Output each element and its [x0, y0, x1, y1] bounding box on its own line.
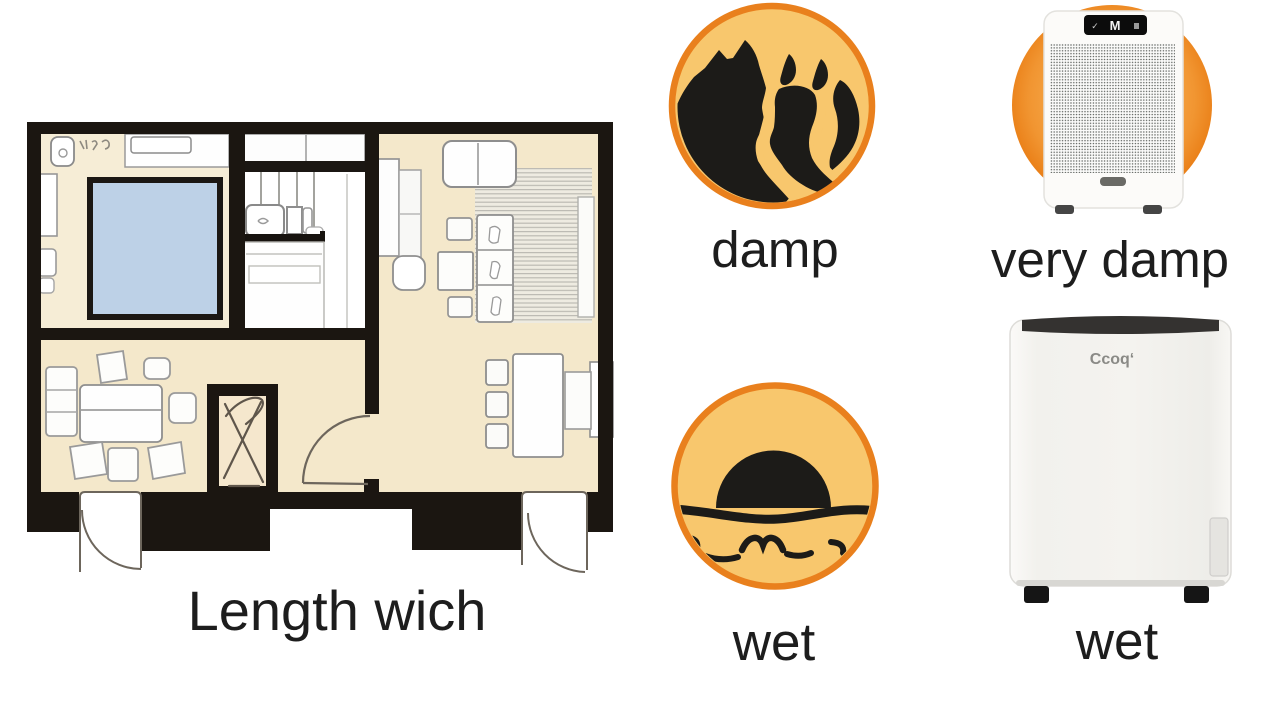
svg-text:very damp: very damp: [991, 231, 1229, 288]
svg-text:wet: wet: [1075, 612, 1159, 671]
svg-text:M: M: [1110, 18, 1121, 33]
svg-text:wet: wet: [732, 613, 816, 672]
svg-text:damp: damp: [711, 221, 839, 278]
svg-text:Length wich: Length wich: [188, 579, 487, 642]
svg-text:Ccoqʻ: Ccoqʻ: [1090, 351, 1134, 368]
svg-text:✓: ✓: [1091, 21, 1099, 31]
